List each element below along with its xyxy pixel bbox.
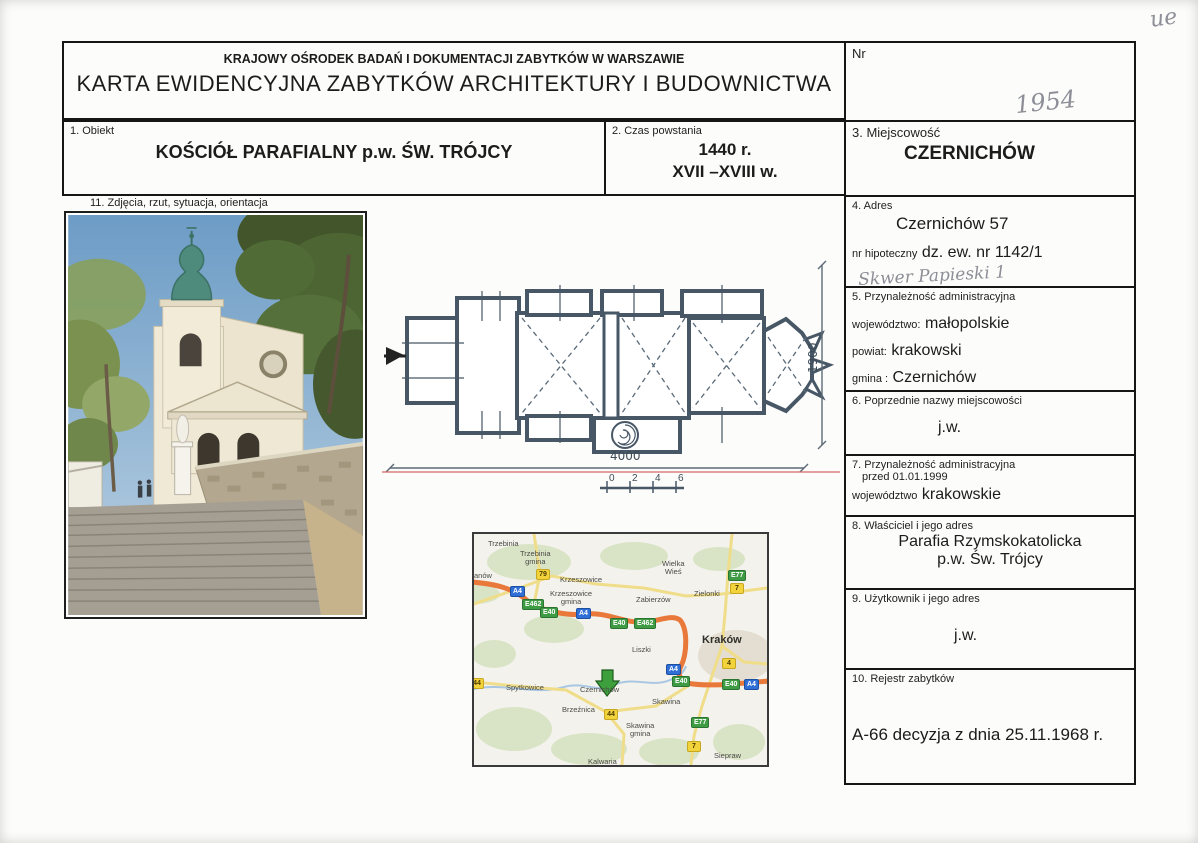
hipoteczny-value: dz. ew. nr 1142/1 [922, 244, 1043, 261]
field-przynaleznosc-label: 5. Przynależność administracyjna [852, 291, 1128, 303]
scale-tick-6: 6 [678, 473, 684, 484]
field-czas-line1: 1440 r. [606, 140, 844, 160]
road-shield-a4-3: A4 [666, 664, 681, 675]
road-shield-e40-1: E40 [540, 607, 558, 618]
road-shield-a4-4: A4 [744, 679, 759, 690]
nr-box: Nr 1954 [846, 43, 1134, 122]
map-label-kalwaria: Kalwaria [588, 758, 617, 766]
field-miejscowosc: 3. Miejscowość CZERNICHÓW [846, 122, 1134, 198]
road-shield-7-1: 7 [730, 583, 744, 594]
map-label-trzebinia-gmina: Trzebinia gmina [520, 550, 551, 566]
scale-tick-2: 2 [632, 473, 638, 484]
scale-tick-4: 4 [655, 473, 661, 484]
field-przed1999-label2: przed 01.01.1999 [862, 471, 1128, 483]
gmina-label: gmina : [852, 373, 888, 385]
organization-name: KRAJOWY OŚRODEK BADAŃ I DOKUMENTACJI ZAB… [64, 52, 844, 66]
map-graphics [474, 534, 767, 765]
field-miejscowosc-label: 3. Miejscowość [852, 125, 1128, 140]
field-wlasciciel-line1: Parafia Rzymskokatolicka [852, 533, 1128, 551]
wojewodztwo-przed-value: krakowskie [922, 486, 1001, 503]
field-przed1999-label1: 7. Przynależność administracyjna [852, 459, 1128, 471]
field-obiekt-value: KOŚCIÓŁ PARAFIALNY p.w. ŚW. TRÓJCY [64, 142, 604, 163]
scale-tick-0: 0 [609, 473, 615, 484]
road-shield-44-1: 44 [604, 709, 618, 720]
map-label-siepraw: Siepraw [714, 752, 741, 760]
field-obiekt: 1. Obiekt KOŚCIÓŁ PARAFIALNY p.w. ŚW. TR… [62, 120, 606, 196]
right-column: Nr 1954 3. Miejscowość CZERNICHÓW 4. Adr… [844, 41, 1136, 785]
field-przed-1999: 7. Przynależność administracyjna przed 0… [846, 456, 1134, 517]
field-poprzednie-label: 6. Poprzednie nazwy miejscowości [852, 395, 1128, 407]
road-shield-4: 4 [722, 658, 736, 669]
field-rejestr: 10. Rejestr zabytków A-66 decyzja z dnia… [846, 670, 1134, 783]
map-label-liszki: Liszki [632, 646, 651, 654]
road-shield-e40-2: E40 [610, 618, 628, 629]
card-title: KARTA EWIDENCYJNA ZABYTKÓW ARCHITEKTURY … [64, 71, 844, 97]
field-miejscowosc-value: CZERNICHÓW [904, 143, 1128, 165]
field-uzytkownik-value: j.w. [954, 627, 1128, 645]
road-shield-e77-1: E77 [728, 570, 746, 581]
field-rejestr-value: A-66 decyzja z dnia 25.11.1968 r. [852, 725, 1128, 745]
field-czas-label: 2. Czas powstania [606, 122, 844, 140]
road-shield-79: 79 [536, 569, 550, 580]
map-label-chrzanow: anów [474, 572, 492, 580]
plan-dim-width: 4000 [610, 449, 641, 463]
photo-frame [64, 211, 367, 619]
map-label-spytkowice: Spytkowice [506, 684, 544, 692]
map-label-krzeszowice-gmina: Krzeszowice gmina [550, 590, 592, 606]
road-shield-e77-2: E77 [691, 717, 709, 728]
header-box: KRAJOWY OŚRODEK BADAŃ I DOKUMENTACJI ZAB… [62, 41, 846, 120]
field-wlasciciel-label: 8. Właściciel i jego adres [852, 520, 1128, 532]
wojewodztwo-przed-label: województwo [852, 490, 917, 502]
field-czas-line2: XVII –XVIII w. [606, 162, 844, 182]
field-czas-powstania: 2. Czas powstania 1440 r. XVII –XVIII w. [604, 120, 846, 196]
nr-label: Nr [852, 46, 1128, 61]
hipoteczny-label: nr hipoteczny [852, 248, 917, 260]
field-adres-value: Czernichów 57 [896, 214, 1128, 234]
map-label-skawina: Skawina [652, 698, 680, 706]
gmina-value: Czernichów [893, 369, 977, 386]
map-label-wielka-wies: Wielka Wieś [662, 560, 685, 576]
road-shield-7-2: 7 [687, 741, 701, 752]
road-shield-a4-1: A4 [510, 586, 525, 597]
field-uzytkownik: 9. Użytkownik i jego adres j.w. [846, 590, 1134, 670]
map-label-zielonki: Zielonki [694, 590, 720, 598]
map-label-zabierzow: Zabierzów [636, 596, 671, 604]
map-label-krzeszowice: Krzeszowice [560, 576, 602, 584]
road-shield-44-2: 44 [472, 678, 484, 689]
field-wlasciciel-line2: p.w. Św. Trójcy [852, 551, 1128, 569]
corner-pencil-mark: ue [1148, 4, 1178, 33]
field-rejestr-label: 10. Rejestr zabytków [852, 673, 1128, 685]
field-wlasciciel: 8. Właściciel i jego adres Parafia Rzyms… [846, 517, 1134, 591]
field-adres-label: 4. Adres [852, 200, 1128, 212]
plan-dim-height: 1900 [806, 342, 820, 373]
field-poprzednie-value: j.w. [938, 419, 1128, 437]
wojewodztwo-value: małopolskie [925, 315, 1009, 332]
map-label-krakow: Kraków [702, 636, 742, 644]
site-map: Trzebinia Trzebinia gmina anów Krzeszowi… [472, 532, 769, 767]
nr-handwritten: 1954 [1014, 84, 1078, 118]
field-adres: 4. Adres Czernichów 57 nr hipoteczny dz.… [846, 197, 1134, 288]
map-label-skawina-gmina: Skawina gmina [626, 722, 654, 738]
road-shield-e40-4: E40 [722, 679, 740, 690]
field-przynaleznosc: 5. Przynależność administracyjna wojewód… [846, 288, 1134, 392]
plan-figure: 4000 1900 0 2 4 6 [382, 243, 842, 499]
powiat-value: krakowski [891, 342, 961, 359]
powiat-label: powiat: [852, 346, 887, 358]
road-shield-e462-2: E462 [634, 618, 656, 629]
field-zdjecia-label: 11. Zdjęcia, rzut, sytuacja, orientacja [90, 197, 268, 209]
field-obiekt-label: 1. Obiekt [64, 122, 604, 140]
road-shield-a4-2: A4 [576, 608, 591, 619]
field-uzytkownik-label: 9. Użytkownik i jego adres [852, 593, 1128, 605]
road-shield-e40-3: E40 [672, 676, 690, 687]
heritage-record-card: ue KRAJOWY OŚRODEK BADAŃ I DOKUMENTACJI … [0, 0, 1198, 843]
wojewodztwo-label: województwo: [852, 319, 920, 331]
map-label-czernichow: Czernichów [580, 686, 619, 694]
church-photo [68, 215, 363, 615]
map-label-brzeznica: Brzeźnica [562, 706, 595, 714]
map-label-trzebinia: Trzebinia [488, 540, 519, 548]
field-poprzednie-nazwy: 6. Poprzednie nazwy miejscowości j.w. [846, 392, 1134, 456]
